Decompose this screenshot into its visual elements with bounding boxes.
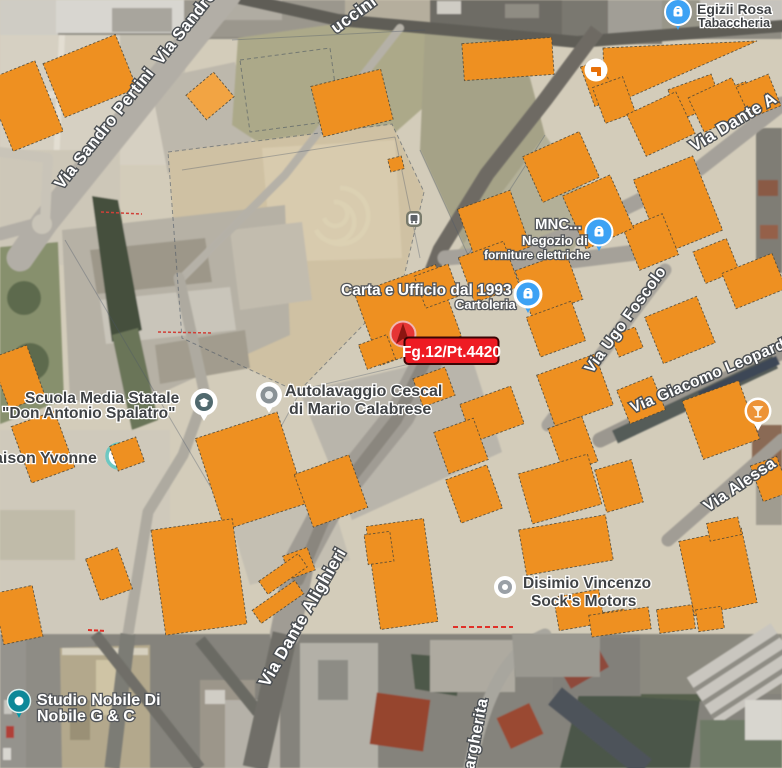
svg-text:Fg.12/Pt.4420: Fg.12/Pt.4420: [402, 344, 501, 361]
svg-text:MNC...: MNC...: [535, 216, 582, 233]
svg-text:Negozio di: Negozio di: [522, 233, 588, 248]
svg-text:Tabaccheria: Tabaccheria: [698, 16, 771, 30]
svg-text:Autolavaggio Cescal: Autolavaggio Cescal: [285, 383, 442, 400]
svg-text:Disimio Vincenzo: Disimio Vincenzo: [523, 575, 651, 592]
svg-text:Egizii Rosa: Egizii Rosa: [697, 1, 772, 17]
svg-text:"Don Antonio Spalatro": "Don Antonio Spalatro": [2, 405, 175, 422]
svg-text:forniture elettriche: forniture elettriche: [484, 248, 590, 262]
svg-text:Sock's Motors: Sock's Motors: [531, 593, 636, 610]
svg-text:Studio Nobile Di: Studio Nobile Di: [37, 692, 161, 709]
svg-text:aison Yvonne: aison Yvonne: [0, 450, 97, 467]
svg-text:di Mario Calabrese: di Mario Calabrese: [289, 401, 431, 418]
svg-text:Cartoleria: Cartoleria: [455, 297, 516, 312]
svg-text:Nobile G & C: Nobile G & C: [37, 708, 135, 725]
